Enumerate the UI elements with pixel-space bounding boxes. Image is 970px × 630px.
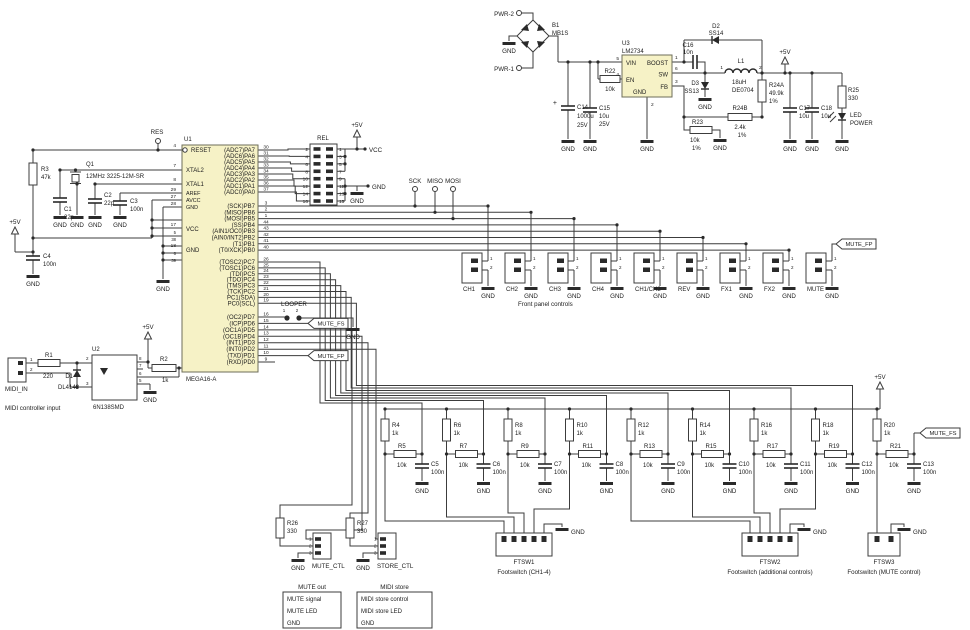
resistor-ref: R6 (454, 423, 462, 429)
resistor-ref: R17 (767, 444, 779, 450)
midi-store-title: MIDI store (380, 584, 409, 591)
label: 10k (520, 463, 531, 469)
labels: PWR-2PWR-1B1MB1SGND+C141000u25VGNDC1510u… (5, 11, 957, 627)
mcu-pin-label: (MISO)PB6 (224, 210, 255, 216)
pin-number: 36 (263, 180, 269, 186)
r24b-ref: R24B (732, 106, 747, 112)
mcu-pin-label: (T1)PB1 (233, 242, 256, 248)
gnd-label: GND (696, 293, 710, 300)
pin-number: 2 (705, 265, 708, 270)
gnd-label: GND (571, 529, 585, 536)
gnd-label: GND (813, 529, 827, 536)
connector-pad (686, 268, 693, 273)
pin-number: 1 (265, 213, 268, 219)
capacitor-plate (600, 467, 614, 469)
gnd-icon (908, 482, 921, 485)
net-flag-label: MUTE_FS (317, 322, 344, 328)
label: SS13 (684, 89, 699, 95)
junction-dot (851, 452, 854, 455)
mcu-pin-label: PC0(SCL) (228, 301, 255, 307)
pin-number: 1 (619, 256, 622, 261)
junction-dot (783, 71, 786, 74)
label: 100n (923, 470, 936, 476)
gnd-icon (157, 280, 170, 283)
u3-part: LM2734 (622, 49, 644, 55)
resistor-ref: R5 (398, 444, 406, 450)
junction-dot (666, 452, 669, 455)
connector-pad (314, 162, 321, 166)
pin-number: 30 (263, 144, 269, 150)
label: 10u (799, 114, 809, 120)
pin-number: 12 (303, 184, 309, 190)
gnd-label: GND (783, 146, 797, 153)
junction-dot (568, 407, 571, 410)
junction-dot (596, 60, 599, 63)
pin-number: 7 (339, 169, 342, 175)
net-r-side-body (394, 451, 416, 458)
gnd-icon (27, 275, 40, 278)
label: EN (626, 78, 634, 84)
spi-label: MISO (427, 178, 443, 185)
r1-ref: R1 (45, 353, 53, 359)
pin-number: 15 (339, 199, 345, 205)
junction-dot (451, 217, 454, 220)
d2-ref: D2 (712, 24, 720, 30)
pin-number: 43 (263, 226, 269, 232)
wire (712, 130, 720, 138)
label: 330 (287, 529, 298, 535)
resistor-ref: R8 (515, 423, 523, 429)
gnd-icon (292, 559, 305, 562)
label: 10k (582, 463, 593, 469)
junction-dot (150, 218, 153, 221)
gnd-label: GND (477, 488, 491, 495)
pin-number: 5 (616, 56, 619, 62)
mcu-pin-label: XTAL1 (186, 182, 205, 188)
label: DE0704 (732, 88, 754, 94)
led-label: POWER (850, 121, 873, 127)
label: 1% (769, 99, 778, 105)
label: 49.9k (769, 91, 785, 97)
label: 100n (554, 470, 567, 476)
pin-number: 10 (303, 177, 309, 183)
fp-connector-label: CH2 (506, 287, 519, 293)
gnd-label: GND (502, 48, 516, 55)
mcu-pin-label: (ICP)PD6 (229, 321, 255, 327)
connector-pad (314, 199, 321, 203)
connector-pad (326, 169, 333, 173)
fp-connector-label: CH1/CH2 (635, 287, 661, 293)
fp-connector-label: CH3 (549, 287, 562, 293)
connector-pad (815, 259, 822, 264)
mcu-pin-label: (AIN1/OC0)PB3 (212, 229, 255, 235)
label: VIN (626, 61, 636, 67)
label: 10n (683, 50, 693, 56)
pin-number: 9 (339, 177, 342, 183)
pin-number: 1 (834, 256, 837, 261)
gnd-label: GND (723, 488, 737, 495)
gnd-label: GND (113, 222, 127, 229)
gnd-icon (783, 287, 796, 290)
gnd-icon (611, 287, 624, 290)
resistor-ref: R9 (521, 444, 529, 450)
resistor-ref: R18 (823, 423, 835, 429)
junction-dot (629, 452, 632, 455)
connector-pad (471, 268, 478, 273)
pin-number: 2 (576, 265, 579, 270)
pin-number: 39 (171, 258, 176, 263)
connector-pad (512, 536, 517, 542)
gnd-icon (503, 42, 516, 45)
gnd-label: GND (784, 488, 798, 495)
label: 1k (454, 431, 461, 437)
label: 1k (761, 431, 768, 437)
pin-number: 13 (263, 331, 269, 337)
crystal-body (72, 175, 79, 183)
net-r-top-body (689, 419, 697, 441)
wire (275, 336, 362, 539)
r2-ref: R2 (160, 357, 168, 363)
label: 100n (431, 470, 444, 476)
pin-number: 2 (265, 207, 268, 213)
pin-number: 2 (30, 367, 33, 372)
label: 100n (493, 470, 506, 476)
pin-number: 8 (139, 356, 142, 361)
capacitor-plate (783, 111, 797, 113)
spi-label: MOSI (445, 178, 461, 185)
pin-number: 20 (263, 292, 269, 298)
gnd-icon (525, 287, 538, 290)
connector-pad (326, 192, 333, 196)
pin-number: 24 (263, 268, 269, 274)
capacitor-plate (477, 463, 491, 465)
gnd-icon (826, 287, 839, 290)
label: SW (658, 73, 668, 79)
gnd-icon (806, 140, 819, 143)
net-r-side-body (763, 451, 785, 458)
capacitor-ref: C12 (862, 462, 874, 468)
gnd-label: GND (70, 222, 84, 229)
connector-pad (729, 259, 736, 264)
pin-number: 1 (720, 65, 723, 71)
q1-value: 12MHz 3225-12M-SR (86, 174, 145, 180)
r3-ref: R3 (41, 167, 49, 173)
junction-dot (875, 452, 878, 455)
pin-number: 18 (171, 243, 177, 249)
net-r-top-body (627, 419, 635, 441)
reset-bubble-icon (183, 148, 187, 152)
label: 1k (638, 431, 645, 437)
junction-dot (572, 217, 575, 220)
bridge-rectifier-icon (517, 20, 549, 52)
connector-pad (326, 199, 333, 203)
plus5v-arrow-icon (354, 130, 361, 137)
u3-ref: U3 (622, 41, 630, 47)
gnd-label: GND (350, 198, 364, 205)
gnd-label: GND (907, 488, 921, 495)
junction-dot (355, 147, 358, 150)
connector-pad (729, 268, 736, 273)
junction-dot (615, 223, 618, 226)
resistor-ref: R19 (829, 444, 841, 450)
label: GND (633, 90, 647, 96)
pin-number: 26 (263, 256, 269, 262)
net-r-top-body (504, 419, 512, 441)
plus5v-arrow-icon (782, 57, 789, 64)
label: 1k (700, 431, 707, 437)
junction-dot (703, 71, 706, 74)
label: 10k (889, 463, 900, 469)
pin-number: 23 (263, 274, 269, 280)
store-ctl-label: STORE_CTL (377, 563, 414, 570)
midi-store-row: MIDI store LED (361, 609, 403, 615)
junction-dot (75, 385, 78, 388)
pin-number: 27 (171, 194, 177, 200)
junction-dot (658, 230, 661, 233)
connector-pad (514, 259, 521, 264)
net-r-side-body (825, 451, 847, 458)
pin-number: 2 (651, 102, 654, 108)
junction-dot (445, 407, 448, 410)
connector-pad (502, 536, 507, 542)
d1-ref: D1 (65, 374, 73, 380)
pin-number: 16 (303, 199, 309, 205)
gnd-label: GND (415, 488, 429, 495)
mute-out-row: MUTE LED (287, 609, 318, 615)
connector-pad (314, 184, 321, 188)
capacitor-plate (561, 105, 575, 107)
r23-body (690, 127, 712, 134)
connector-pad (315, 544, 321, 548)
pin-number: 17 (171, 222, 177, 228)
label: 1% (738, 133, 747, 139)
pin-number: 6 (675, 66, 678, 72)
ftsw3-label: FTSW3 (874, 559, 896, 566)
connector-pad (380, 537, 386, 541)
gnd-icon (562, 140, 575, 143)
mcu-pin-label: GND (186, 205, 198, 211)
connector-pad (875, 536, 880, 542)
connector-pad (889, 536, 894, 542)
gnd-icon (836, 140, 849, 143)
diode-icon (73, 370, 81, 377)
junction-dot (760, 71, 763, 74)
gnd-icon (357, 559, 370, 562)
ftsw3-caption: Footswitch (MUTE control) (847, 569, 920, 576)
resistor-ref: R20 (884, 423, 896, 429)
connector-pad (326, 177, 333, 181)
plus5v-label: +5V (874, 374, 886, 381)
connector-pad (778, 536, 783, 542)
capacitor-plate (415, 463, 429, 465)
label: 1k (162, 378, 169, 384)
r24a-body (758, 80, 766, 102)
wire (522, 13, 533, 20)
gnd-icon (600, 482, 613, 485)
junction-dot (93, 182, 96, 185)
pin-number: 22 (263, 280, 269, 286)
wire (275, 343, 368, 518)
resistor-ref: R16 (761, 423, 773, 429)
junction-dot (366, 184, 369, 187)
junction-dot (420, 452, 423, 455)
mcu-pin-label: RESET (191, 148, 211, 154)
capacitor-plate (88, 202, 102, 204)
testpoint-icon (413, 187, 418, 192)
testpoint-icon (517, 11, 522, 16)
spi-label: SCK (409, 178, 423, 185)
polarity-plus: + (553, 100, 557, 107)
connector-pad (314, 192, 321, 196)
junction-dot (691, 452, 694, 455)
mcu-pin-label: (OC1B)PD4 (223, 334, 256, 340)
testpoint-icon (156, 139, 161, 144)
pin-number: 40 (263, 245, 269, 251)
net-r-top-body (381, 419, 389, 441)
connector-pad (314, 169, 321, 173)
gnd-label: GND (583, 146, 597, 153)
mcu-pin-label: (T0/XCK)PB0 (219, 248, 256, 254)
label: FB (660, 85, 668, 91)
capacitor-plate (661, 467, 675, 469)
gnd-label: GND (372, 184, 386, 191)
capacitor-ref: C8 (616, 462, 624, 468)
fp-connector-label: FX2 (764, 287, 776, 293)
gnd-icon (846, 482, 859, 485)
junction-dot (912, 452, 915, 455)
mcu-pin-label: VCC (186, 227, 199, 233)
net-flag-label: MUTE_FP (317, 354, 344, 360)
gnd-icon (568, 287, 581, 290)
pin-number: 10 (263, 350, 269, 356)
r27-ref: R27 (357, 521, 369, 527)
resistor-ref: R12 (638, 423, 650, 429)
wire (275, 286, 668, 454)
mcu-pin-label: (SS)PB4 (232, 223, 256, 229)
connector-pad (758, 536, 763, 542)
capacitor-plate (538, 463, 552, 465)
gnd-label: GND (846, 488, 860, 495)
junction-dot (150, 226, 153, 229)
mcu-pin-label: AVCC (186, 198, 201, 204)
gnd-icon (723, 482, 736, 485)
pin-number: 1 (30, 357, 33, 362)
r22-ref: R22 (604, 69, 616, 75)
junction-dot (506, 452, 509, 455)
r3-body (29, 163, 37, 185)
gnd-label: GND (782, 293, 796, 300)
wires (15, 13, 921, 616)
capacitor-plate (415, 467, 429, 469)
net-r-top-body (443, 419, 451, 441)
r27-body (346, 518, 354, 538)
mcu-pin-label: XTAL2 (186, 168, 205, 174)
junction-dot (752, 407, 755, 410)
pin-number: 1 (490, 256, 493, 261)
label: 47k (41, 175, 52, 181)
gnd-icon (785, 482, 798, 485)
pin-number: 6 (139, 371, 142, 376)
resistor-ref: R4 (392, 423, 400, 429)
junction-dot (146, 360, 149, 363)
fp-connector-label: CH1 (463, 287, 476, 293)
label: 25V (599, 122, 610, 128)
r26-ref: R26 (287, 521, 299, 527)
fp-connector-label: FX1 (721, 287, 733, 293)
b1-value: MB1S (552, 31, 568, 37)
capacitor-plate (907, 463, 921, 465)
junction-dot (343, 155, 346, 158)
resistor-ref: R13 (644, 444, 656, 450)
connector-pad (315, 551, 321, 555)
u2-ref: U2 (92, 347, 100, 353)
pin-number: 8 (305, 169, 308, 175)
junction-dot (31, 148, 34, 151)
gnd-icon (662, 482, 675, 485)
pin-number: 16 (263, 311, 269, 317)
gnd-icon (898, 528, 911, 531)
c18-ref: C18 (821, 106, 833, 112)
label: 1k (392, 431, 399, 437)
junction-dot (506, 407, 509, 410)
label: 1k (884, 431, 891, 437)
connector-pad (18, 361, 23, 365)
connector-pad (380, 551, 386, 555)
connector-pad (600, 259, 607, 264)
connector-pad (326, 147, 333, 151)
capacitor-plate (88, 198, 102, 200)
capacitor-plate (783, 107, 797, 109)
label: 22p (104, 201, 115, 207)
pin-number: 2 (662, 265, 665, 270)
u1-ref: U1 (184, 137, 192, 143)
capacitor-plate (561, 109, 575, 111)
midi-store-row: GND (361, 621, 375, 627)
r2-body (152, 365, 176, 372)
capacitor-plate (846, 463, 860, 465)
net-r-side-body (456, 451, 478, 458)
pin-number: 1 (339, 147, 342, 153)
connector-pad (643, 259, 650, 264)
gnd-icon (697, 287, 710, 290)
gnd-label: GND (610, 293, 624, 300)
gnd-icon (641, 140, 654, 143)
b1-ref: B1 (552, 23, 560, 29)
pin-number: 33 (263, 162, 269, 168)
plus5v-arrow-icon (877, 382, 884, 389)
ftsw3-connector (868, 533, 900, 556)
mcu-pin-label: (ADC0)PA0 (224, 190, 256, 196)
mcu-pin-label: (SCK)PB7 (227, 204, 255, 210)
junction-dot (161, 258, 164, 261)
pin-number: 37 (263, 186, 269, 192)
connector-pad (326, 162, 333, 166)
junction-dot (482, 452, 485, 455)
connector-pad (314, 155, 321, 159)
gnd-label: GND (739, 293, 753, 300)
wire (275, 349, 378, 539)
connector-pad (772, 268, 779, 273)
junction-dot (445, 452, 448, 455)
label: 10k (643, 463, 654, 469)
label: 100n (739, 470, 752, 476)
pin-number: 11 (339, 184, 344, 190)
pin-number: 2 (759, 65, 762, 71)
r26-body (276, 518, 284, 538)
connector-pad (522, 536, 527, 542)
mute-out-row: MUTE signal (287, 597, 321, 603)
junction-dot (529, 211, 532, 214)
